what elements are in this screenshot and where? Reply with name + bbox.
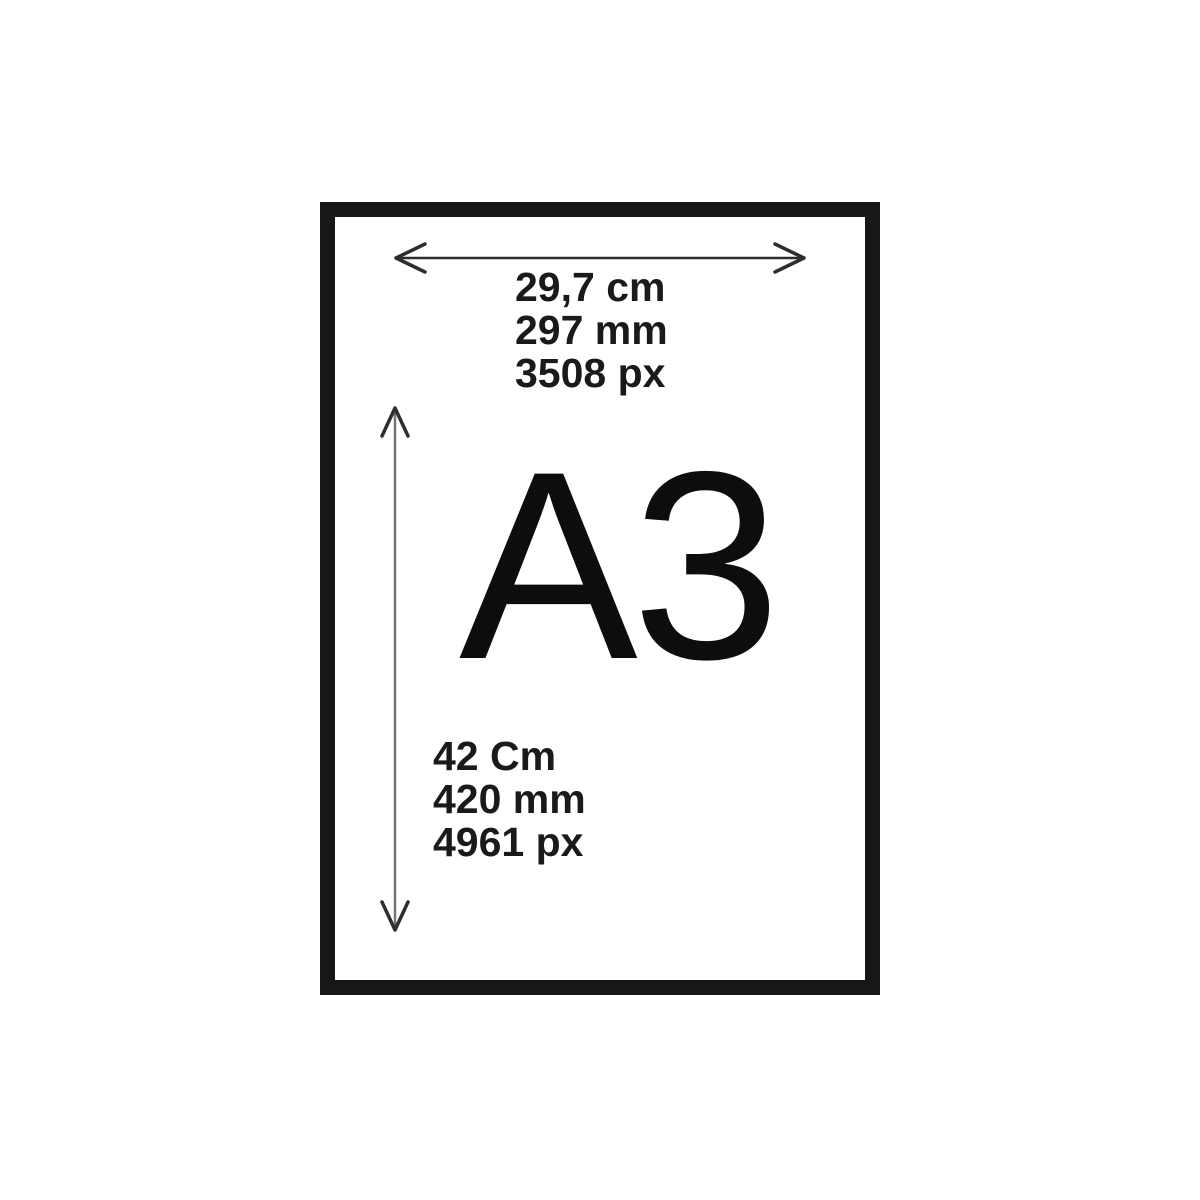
height-label-cm: 42 Cm	[433, 735, 586, 778]
height-label-px: 4961 px	[433, 821, 586, 864]
height-dimension-labels: 42 Cm 420 mm 4961 px	[433, 735, 586, 864]
width-label-cm: 29,7 cm	[515, 266, 668, 309]
height-label-mm: 420 mm	[433, 778, 586, 821]
paper-size-label: A3	[459, 431, 775, 699]
width-label-mm: 297 mm	[515, 309, 668, 352]
width-label-px: 3508 px	[515, 352, 668, 395]
width-dimension-labels: 29,7 cm 297 mm 3508 px	[515, 266, 668, 395]
paper-size-diagram: 29,7 cm 297 mm 3508 px 42 Cm 420 mm 4961…	[0, 0, 1200, 1200]
